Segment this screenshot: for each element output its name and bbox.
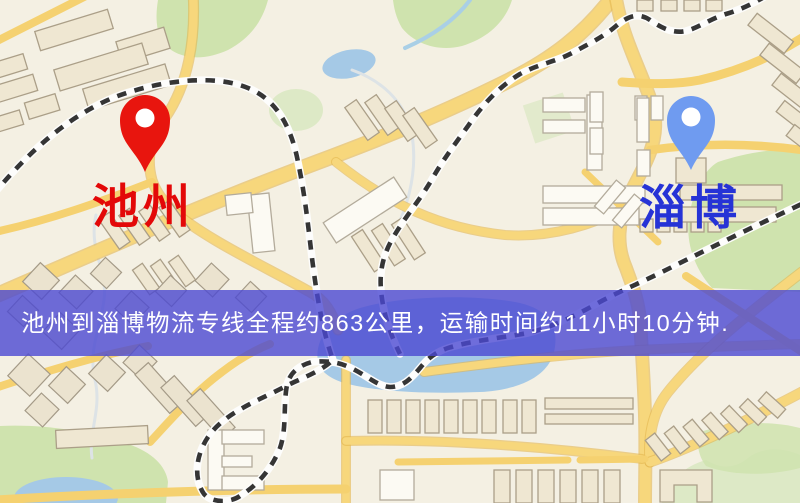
destination-pin-hole [682, 108, 701, 127]
map-canvas: 池州到淄博物流专线全程约863公里，运输时间约11小时10分钟. 池州 淄博 [0, 0, 800, 503]
origin-pin-hole [136, 109, 155, 128]
origin-label: 池州 [92, 182, 194, 234]
destination-label: 淄博 [639, 183, 741, 235]
route-banner: 池州到淄博物流专线全程约863公里，运输时间约11小时10分钟. [0, 290, 800, 356]
route-banner-text: 池州到淄博物流专线全程约863公里，运输时间约11小时10分钟. [21, 310, 729, 336]
